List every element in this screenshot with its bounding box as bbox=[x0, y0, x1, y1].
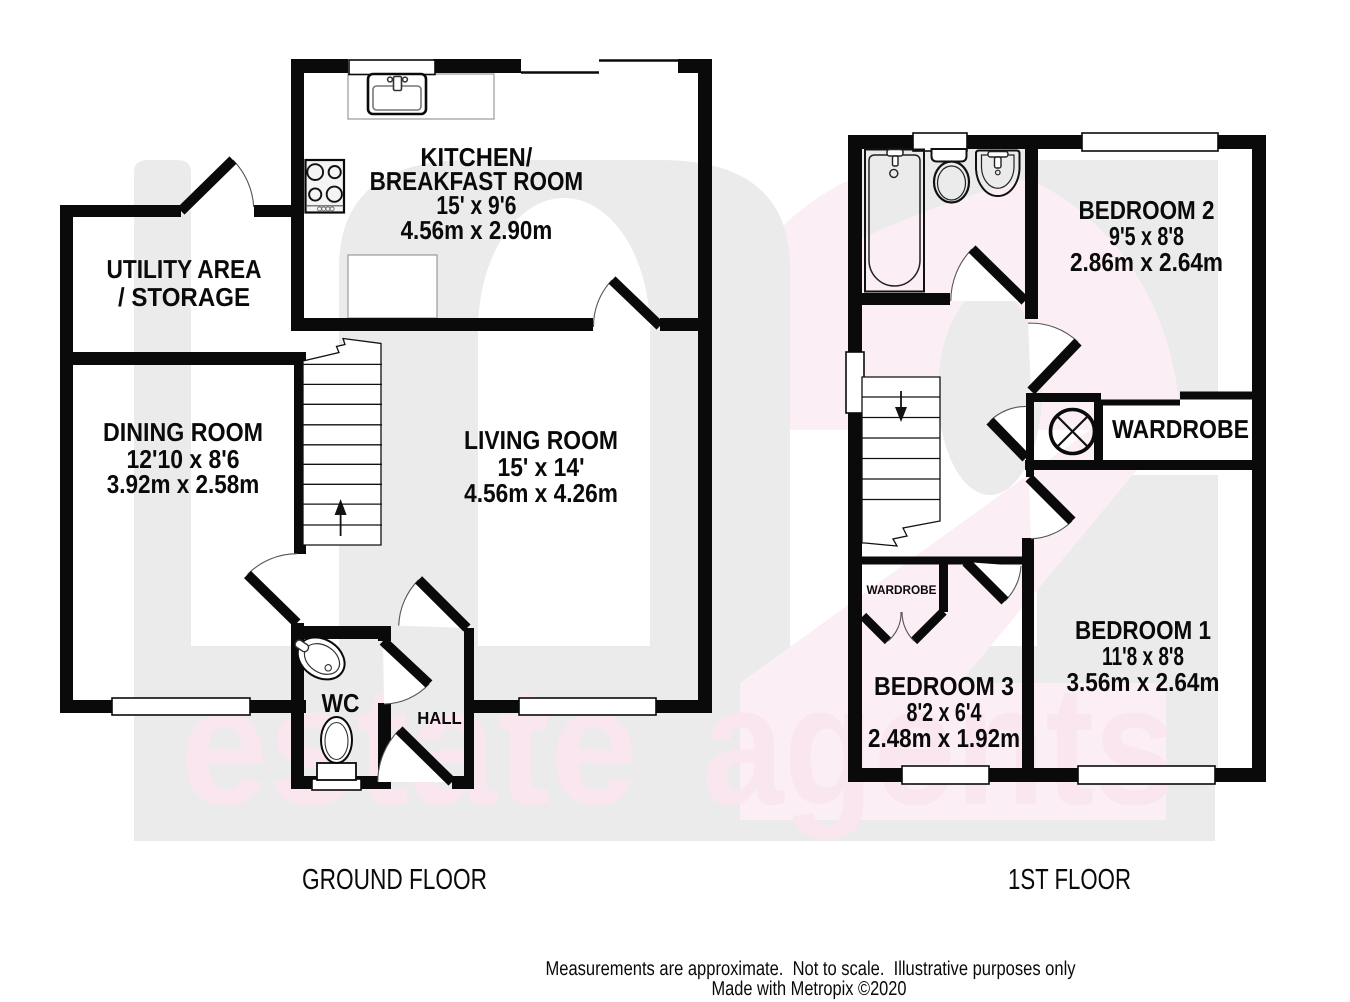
svg-text:/ STORAGE: / STORAGE bbox=[118, 282, 250, 312]
svg-text:DINING ROOM: DINING ROOM bbox=[103, 417, 263, 447]
svg-text:3.56m x 2.64m: 3.56m x 2.64m bbox=[1067, 667, 1220, 697]
svg-text:HALL: HALL bbox=[417, 708, 462, 728]
svg-text:WARDROBE: WARDROBE bbox=[867, 583, 937, 597]
svg-text:2.86m x 2.64m: 2.86m x 2.64m bbox=[1070, 247, 1223, 277]
svg-text:GROUND FLOOR: GROUND FLOOR bbox=[302, 864, 487, 896]
svg-text:UTILITY AREA: UTILITY AREA bbox=[107, 254, 262, 284]
svg-text:Made with Metropix ©2020: Made with Metropix ©2020 bbox=[712, 978, 907, 1000]
svg-text:4.56m x 4.26m: 4.56m x 4.26m bbox=[464, 478, 618, 508]
svg-text:1ST FLOOR: 1ST FLOOR bbox=[1008, 864, 1131, 896]
svg-text:WC: WC bbox=[322, 688, 360, 718]
svg-text:WARDROBE: WARDROBE bbox=[1112, 414, 1249, 444]
svg-text:LIVING ROOM: LIVING ROOM bbox=[464, 425, 618, 455]
svg-text:4.56m x 2.90m: 4.56m x 2.90m bbox=[401, 215, 553, 245]
svg-text:2.48m x 1.92m: 2.48m x 1.92m bbox=[868, 723, 1020, 753]
svg-text:Measurements are approximate.: Measurements are approximate. Not to sca… bbox=[546, 958, 1076, 980]
svg-text:3.92m x 2.58m: 3.92m x 2.58m bbox=[107, 469, 260, 499]
